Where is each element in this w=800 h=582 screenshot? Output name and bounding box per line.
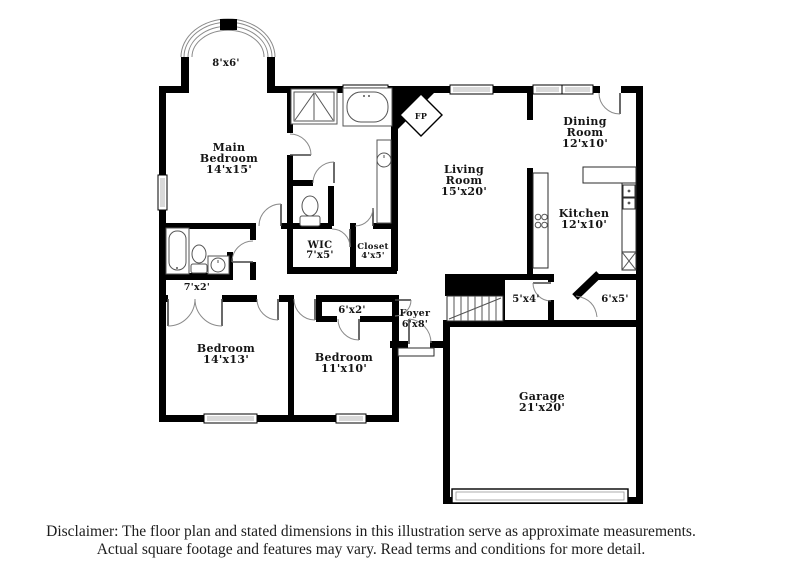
room-label-6x5: 6'x5' xyxy=(601,294,629,305)
door-icon xyxy=(338,319,359,340)
svg-text:5'x4': 5'x4' xyxy=(512,294,540,305)
door-icon xyxy=(259,204,281,226)
room-label-hall-7x2: 7'x2' xyxy=(184,282,210,293)
room-label-kitchen: Kitchen 12'x10' xyxy=(559,207,610,231)
disclaimer-line-2: Actual square footage and features may v… xyxy=(0,541,742,559)
double-door-icon xyxy=(168,299,222,326)
svg-text:Foyer: Foyer xyxy=(400,308,431,319)
room-label-wic: WIC 7'x5' xyxy=(306,240,334,261)
shower-icon xyxy=(291,89,337,124)
room-label-foyer: Foyer 6'x8' xyxy=(400,308,431,330)
door-icon xyxy=(294,299,315,320)
room-label-main-bedroom: Main Bedroom 14'x15' xyxy=(200,141,258,176)
porch-step xyxy=(398,348,434,356)
room-label-garage: Garage 21'x20' xyxy=(519,390,565,414)
svg-text:21'x20': 21'x20' xyxy=(519,401,565,414)
window-icon xyxy=(562,85,593,94)
room-label-bay: 8'x6' xyxy=(212,58,240,69)
window-icon xyxy=(204,414,257,423)
window-icon xyxy=(533,85,562,94)
window-icon xyxy=(158,175,167,210)
floor-plan-drawing: 8'x6' Main Bedroom 14'x15' Living Room 1… xyxy=(0,0,800,582)
svg-text:8'x6': 8'x6' xyxy=(212,58,240,69)
door-icon xyxy=(257,299,278,320)
svg-text:6'x8': 6'x8' xyxy=(402,319,428,330)
door-icon xyxy=(332,229,350,247)
door-icon xyxy=(576,296,597,317)
toilet-icon xyxy=(300,196,320,226)
vanity-sink-icon xyxy=(377,140,391,223)
room-label-closet-6x2: 6'x2' xyxy=(338,305,366,316)
pantry-icon xyxy=(622,252,636,270)
sink-icon xyxy=(208,256,229,274)
room-label-bedroom-14x13: Bedroom 14'x13' xyxy=(197,342,255,366)
svg-text:7'x5': 7'x5' xyxy=(306,250,334,261)
kitchen-sink-icon xyxy=(623,185,635,209)
stairs xyxy=(445,274,503,321)
room-label-closet: Closet 4'x5' xyxy=(357,242,389,261)
door-icon xyxy=(290,134,311,155)
svg-text:7'x2': 7'x2' xyxy=(184,282,210,293)
svg-text:6'x2': 6'x2' xyxy=(338,305,366,316)
bathtub-icon xyxy=(343,88,392,126)
svg-text:4'x5': 4'x5' xyxy=(361,251,385,261)
door-icon xyxy=(232,241,253,262)
svg-text:FP: FP xyxy=(415,111,427,121)
floor-plan-page: 8'x6' Main Bedroom 14'x15' Living Room 1… xyxy=(0,0,800,582)
svg-text:15'x20': 15'x20' xyxy=(441,185,487,198)
door-icon xyxy=(313,162,334,183)
window-icon xyxy=(450,85,493,94)
door-icon xyxy=(599,93,620,114)
door-icon xyxy=(355,208,373,226)
room-label-bedroom-11x10: Bedroom 11'x10' xyxy=(315,351,373,375)
bathtub-icon xyxy=(166,228,189,274)
garage-door xyxy=(452,489,628,503)
fireplace-label: FP xyxy=(415,111,427,121)
room-label-dining-room: Dining Room 12'x10' xyxy=(562,115,608,150)
svg-text:12'x10': 12'x10' xyxy=(562,137,608,150)
disclaimer: Disclaimer: The floor plan and stated di… xyxy=(0,523,742,559)
svg-text:6'x5': 6'x5' xyxy=(601,294,629,305)
svg-text:12'x10': 12'x10' xyxy=(561,218,607,231)
window-icon xyxy=(336,414,366,423)
room-label-5x4: 5'x4' xyxy=(512,294,540,305)
toilet-icon xyxy=(191,245,207,273)
room-label-living-room: Living Room 15'x20' xyxy=(441,163,487,198)
svg-text:11'x10': 11'x10' xyxy=(321,362,367,375)
disclaimer-line-1: Disclaimer: The floor plan and stated di… xyxy=(0,523,742,541)
svg-text:14'x13': 14'x13' xyxy=(203,353,249,366)
svg-text:14'x15': 14'x15' xyxy=(206,163,252,176)
bay-window xyxy=(181,19,275,93)
